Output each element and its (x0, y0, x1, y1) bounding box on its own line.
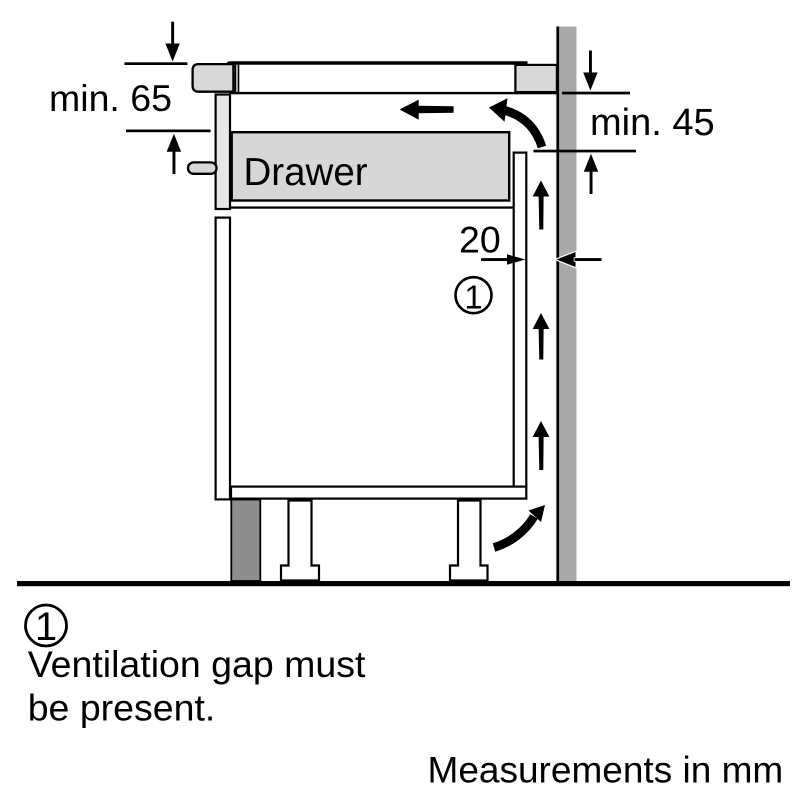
svg-text:Drawer: Drawer (244, 151, 368, 194)
svg-text:Measurements in mm: Measurements in mm (428, 750, 784, 791)
svg-text:min. 45: min. 45 (590, 102, 715, 144)
svg-text:20: 20 (459, 219, 501, 261)
svg-text:be present.: be present. (28, 687, 216, 729)
svg-text:1: 1 (464, 278, 482, 315)
svg-text:Ventilation gap must: Ventilation gap must (28, 643, 366, 685)
svg-text:min. 65: min. 65 (49, 77, 172, 119)
